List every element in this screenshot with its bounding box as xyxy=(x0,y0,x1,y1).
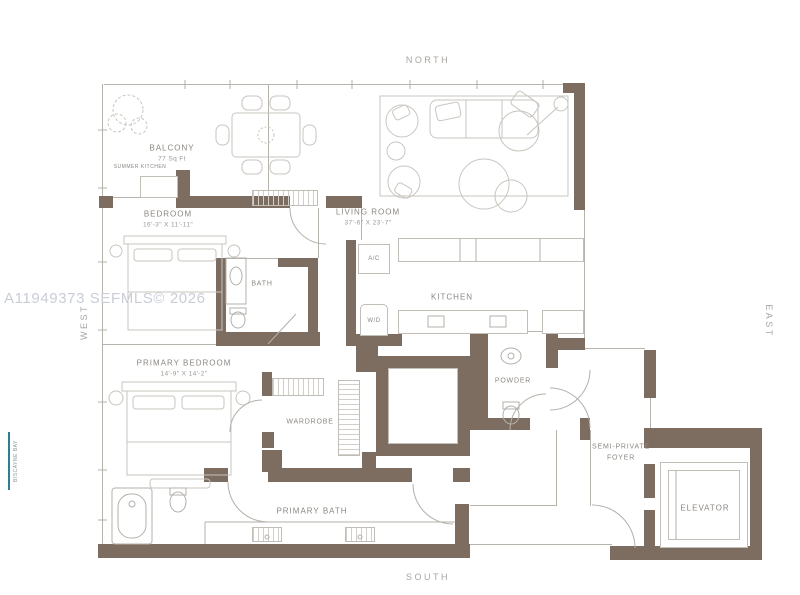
foyer-label-line2: FOYER xyxy=(592,453,650,464)
wd-label: W/D xyxy=(367,318,380,324)
primary-bedroom-label: PRIMARY BEDROOM xyxy=(137,359,232,368)
bay-label: BISCAYNE BAY xyxy=(13,440,19,482)
bedroom-label: BEDROOM xyxy=(144,210,192,219)
kitchen-label: KITCHEN xyxy=(431,293,473,302)
foyer-label-line1: SEMI-PRIVATE xyxy=(592,443,650,454)
mls-watermark: A11949373 SEFMLS© 2026 xyxy=(4,290,206,307)
bay-shoreline-mark xyxy=(8,432,10,490)
ac-label: A/C xyxy=(368,256,380,262)
foyer-label: SEMI-PRIVATE FOYER xyxy=(592,443,650,464)
balcony-label: BALCONY xyxy=(149,144,194,153)
elevator-label: ELEVATOR xyxy=(680,504,729,513)
primary-bedroom-dims: 14'-9" X 14'-2" xyxy=(160,371,207,378)
wardrobe-label: WARDROBE xyxy=(286,419,333,426)
primary-bath-label: PRIMARY BATH xyxy=(276,507,347,516)
compass-east: EAST xyxy=(764,304,774,338)
living-room-label: LIVING ROOM xyxy=(336,208,400,217)
balcony-area: 77 Sq Ft xyxy=(158,156,186,163)
bath-label: BATH xyxy=(251,281,272,288)
compass-north: NORTH xyxy=(406,55,450,65)
compass-south: SOUTH xyxy=(406,572,450,582)
summer-kitchen-label: SUMMER KITCHEN xyxy=(114,164,167,170)
compass-west: WEST xyxy=(79,304,89,340)
bedroom-dims: 16'-3" X 11'-11" xyxy=(143,222,193,229)
powder-label: POWDER xyxy=(495,378,531,385)
floor-plan: BALCONY 77 Sq Ft SUMMER KITCHEN BEDROOM … xyxy=(0,0,800,595)
living-room-dims: 37'-6" X 23'-7" xyxy=(344,220,391,227)
